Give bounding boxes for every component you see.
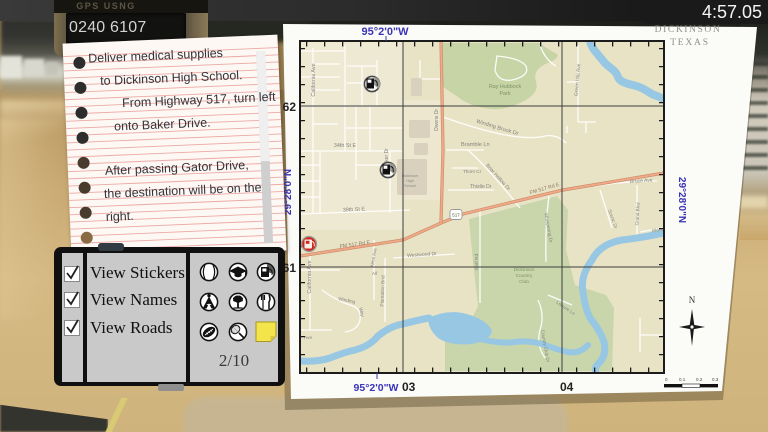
svg-text:Club: Club [519,279,529,285]
svg-text:39th St E: 39th St E [343,206,366,213]
svg-text:Thorn Cr: Thorn Cr [463,169,482,174]
svg-text:California Ave: California Ave [307,260,313,293]
svg-text:Park: Park [499,91,510,97]
svg-text:Bramble Ln: Bramble Ln [461,142,490,148]
svg-text:N: N [689,295,696,305]
svg-text:Owens Dr: Owens Dr [434,109,440,132]
svg-text:School: School [404,184,416,188]
svg-text:Thistle Dr: Thistle Dr [470,184,492,190]
svg-text:0.2: 0.2 [696,377,703,382]
svg-text:TEXAS: TEXAS [670,38,710,48]
svg-text:03: 03 [402,380,416,394]
svg-text:Country: Country [516,273,533,279]
svg-text:517: 517 [452,213,460,218]
svg-text:DICKINSON: DICKINSON [655,25,722,35]
svg-text:29°28'0"N: 29°28'0"N [676,177,687,223]
svg-text:Golf Rd: Golf Rd [474,254,480,271]
svg-text:Ray Hubbock: Ray Hubbock [489,84,522,90]
svg-text:0.3: 0.3 [712,377,719,382]
svg-text:2/10: 2/10 [219,351,249,370]
svg-text:Alf: Alf [372,271,378,276]
svg-text:Ave: Ave [304,335,313,341]
svg-text:0.1: 0.1 [679,377,686,382]
svg-text:04: 04 [560,380,574,394]
svg-text:34th St E: 34th St E [334,143,357,149]
svg-text:95°2'0"W: 95°2'0"W [361,26,409,38]
svg-text:High: High [406,179,414,183]
svg-text:Dickinson: Dickinson [514,267,535,273]
svg-text:California Ave: California Ave [311,63,317,96]
svg-text:Plantation Bnd: Plantation Bnd [379,275,386,307]
svg-text:Dickinson: Dickinson [402,174,418,178]
svg-text:95°2'0"W: 95°2'0"W [354,382,399,394]
